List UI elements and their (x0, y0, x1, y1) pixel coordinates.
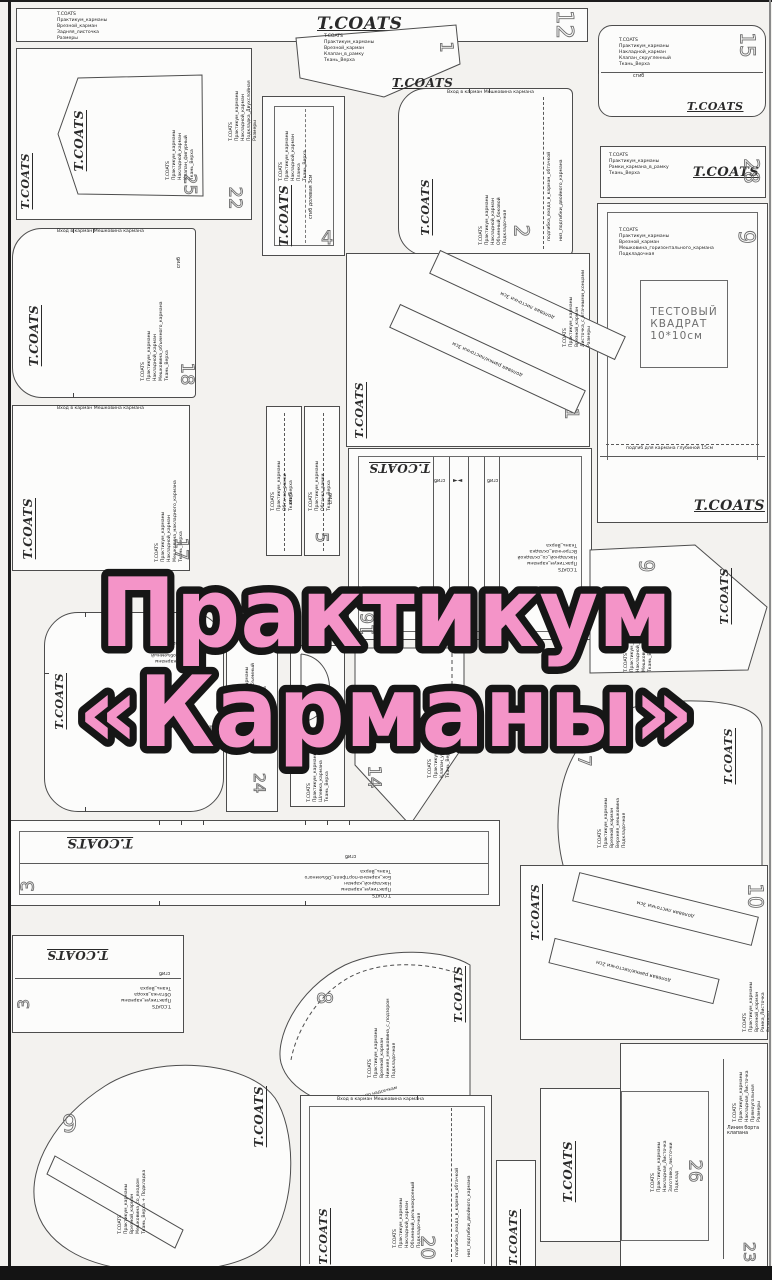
piece-info-block: T.COATS Практикум_карманы Накладной_карм… (279, 111, 309, 181)
pattern-piece-flap-15: T.COATS Практикум_карманы Накладной_карм… (598, 25, 766, 117)
grain-bar: долевая листочки 3см (572, 872, 759, 946)
pattern-piece-welt-1: долевая листочки 3см долевая рамки/листо… (346, 253, 590, 447)
grain-bar-label: долевая листочки 3см (499, 290, 555, 320)
notch-mark (93, 228, 94, 233)
piece-info-block: T.COATS Практикум_карманы Накладной_карм… (479, 179, 509, 245)
fold-line (600, 456, 765, 457)
pattern-piece-strip-28: T.COATS Практикум_карманы Рамки_кармана_… (600, 146, 766, 198)
piece-number: 18 (177, 363, 195, 386)
hem-note: низ_подгибки_двойного_кармана (559, 101, 565, 241)
pattern-piece-strip-5b: T.COATS Практикум_карманы Обтачка_рамки … (304, 406, 340, 556)
piece-info-block: T.COATS Практикум_карманы Врезной_карман… (118, 1148, 148, 1234)
piece-info-block: T.COATS Практикум_карманы Накладной_карм… (229, 61, 259, 141)
hem-note: низ_подгибки_двойного_кармана (467, 1112, 473, 1257)
brand-logo: T.COATS (369, 461, 430, 475)
pattern-piece-pocket-18: Вход в карман Мешковина кармана T.COATS … (12, 228, 196, 398)
piece-info-block: T.COATS Практикум_карманы Врезной_карман… (368, 1002, 398, 1078)
notch-mark (469, 88, 470, 93)
brand-logo: T.COATS (67, 835, 133, 850)
piece-info-block: T.COATS Практикум_карманы Накладной_карм… (166, 110, 196, 180)
brand-logo: T.COATS (317, 1208, 330, 1265)
notch-mark (598, 70, 599, 74)
pleat-arrow-icon: ►◄ (453, 477, 462, 484)
notch-mark (349, 820, 350, 825)
piece-number: 23 (741, 1242, 757, 1262)
pattern-piece-fold-3: T.COATS сгиб T.COATS Практикум_карманы О… (12, 935, 184, 1033)
grain-bar-label: долевая рамки/листочки 3см (451, 340, 523, 378)
notch-mark (85, 807, 86, 812)
test-square-label: ТЕСТОВЫЙ КВАДРАТ 10*10см (650, 306, 717, 342)
title-line-2: «Карманы» (78, 656, 694, 770)
hem-line (543, 97, 544, 249)
notch-mark (181, 820, 182, 825)
piece-number: 9 (734, 230, 756, 244)
pattern-sheet: T.COATS Практикум_карманы Врезной_карман… (0, 0, 772, 1280)
pattern-piece-strip-5a: T.COATS Практикум_карманы Обтачка_рамки … (266, 406, 302, 556)
hem-note: подгибка_входа_в_карман_обтачкой (455, 1112, 461, 1257)
pocket-entry-label: Вход в карман Мешковина кармана (57, 229, 144, 235)
piece-number: 4 (321, 229, 333, 248)
piece-number: 3 (16, 999, 32, 1009)
piece-number: 28 (742, 158, 762, 183)
brand-logo: T.COATS (694, 498, 765, 514)
piece-number: 22 (225, 187, 243, 210)
piece-info-block: T.COATS Практикум_карманы Накладной_карм… (261, 867, 391, 897)
piece-number: 25 (180, 174, 197, 196)
piece-number: 2 (511, 225, 531, 238)
brand-logo: T.COATS (19, 153, 32, 210)
pocket-entry-label: Вход в карман Мешковина кармана (447, 90, 567, 96)
pocket-depth-note: подгиб для кармана глубиной 15см (626, 446, 713, 452)
grain-bar: долевая рамки/листочки 2см (548, 938, 719, 1004)
pattern-piece-bag-9 (25, 1038, 300, 1268)
brand-logo: T.COATS (27, 305, 41, 366)
piece-number: 1 (562, 407, 581, 419)
brand-logo: T.COATS (72, 110, 86, 171)
sheet-edge-bottom (0, 1266, 772, 1280)
piece-info-block: T.COATS Практикум_карманы Обтачка_входа … (91, 984, 171, 1008)
test-square: ТЕСТОВЫЙ КВАДРАТ 10*10см (640, 280, 728, 368)
piece-number: 12 (552, 10, 575, 39)
pattern-piece-test-square-9: T.COATS Практикум_карманы Врезной_карман… (597, 203, 768, 523)
pattern-piece-pocket-20: Вход в карман Мешковина кармана подгибка… (300, 1095, 492, 1268)
pocket-depth-line (606, 444, 759, 445)
piece-number: 3 (20, 880, 38, 891)
piece-info-block: T.COATS Практикум_карманы Накладной_карм… (619, 38, 709, 68)
pattern-piece-welt-10: T.COATS 10 долевая листочки 3см долевая … (520, 865, 768, 1040)
pattern-piece-rect-23: T.COATS Практикум_карманы Накладная_Лист… (620, 1043, 768, 1268)
piece-info-block: T.COATS Практикум_карманы Накладная_Лист… (733, 1052, 763, 1122)
brand-logo: T.COATS (252, 1086, 266, 1147)
fold-label: сгиб (329, 493, 334, 504)
brand-logo: T.COATS (277, 185, 291, 246)
flap-edge-line (723, 1059, 724, 1259)
fold-label: сгиб (434, 477, 445, 482)
piece-info-block: T.COATS Практикум_карманы Врезной_карман… (743, 966, 772, 1032)
notch-mark (73, 228, 74, 233)
fold-label: сгиб (289, 493, 294, 504)
sheet-edge-right (769, 0, 771, 1266)
notch-mark (489, 88, 490, 93)
fold-label: сгиб (159, 970, 170, 975)
pattern-piece-strip-4: T.COATS Практикум_карманы Накладной_карм… (262, 96, 345, 256)
pattern-piece-plain: T.COATS (540, 1088, 632, 1242)
pocket-entry-label: Вход в карман Мешковина кармана (337, 1097, 424, 1103)
piece-number: 1 (437, 41, 455, 52)
grain-bar-label: долевая листочки 3см (636, 899, 695, 919)
brand-logo: T.COATS (419, 179, 432, 236)
notch-mark (327, 820, 328, 825)
pattern-piece-pocket-2: Вход в карман Мешковина кармана подгибка… (398, 88, 573, 256)
hem-note: подгибка_входа_в_карман_обтачкой (547, 101, 553, 241)
piece-info-block: T.COATS Практикум_карманы Врезной_карман… (57, 12, 147, 42)
fold-label: сгиб (345, 853, 356, 858)
fold-line (601, 72, 763, 73)
piece-number: 15 (738, 32, 758, 57)
fold-label: сгиб (633, 74, 644, 79)
notch-mark (159, 820, 160, 825)
fold-label: сгиб (177, 257, 182, 268)
notch-mark (73, 393, 74, 398)
piece-info-block: T.COATS Практикум_карманы Накладная_Лист… (651, 1116, 681, 1192)
flap-edge-label: Линия борта клапана (727, 1126, 767, 1236)
pattern-piece-strip-3: T.COATS сгиб T.COATS Практикум_карманы Н… (8, 820, 500, 906)
sheet-edge-left (8, 0, 11, 1280)
fold-label: сгиб (487, 477, 498, 482)
piece-info-block: T.COATS Практикум_карманы Врезной_карман… (598, 782, 628, 848)
pocket-entry-label: Вход в карман Мешковина кармана (57, 406, 144, 412)
piece-number: 26 (685, 1160, 703, 1183)
brand-logo: T.COATS (529, 884, 542, 941)
piece-info-block: T.COATS Практикум_карманы Врезной_карман… (324, 34, 394, 64)
grain-note: сгиб долевая 3см (309, 139, 314, 219)
notch-mark (159, 901, 160, 906)
piece-number: 24 (251, 773, 267, 793)
piece-info-block: T.COATS Практикум_карманы Накладной_карм… (141, 301, 171, 381)
notch-mark (765, 70, 766, 74)
piece-info-block: T.COATS Практикум_карманы Рамки_кармана_… (609, 153, 694, 177)
piece-number: 20 (418, 1235, 437, 1259)
sheet-edge-top (0, 0, 772, 2)
notch-mark (305, 901, 306, 906)
fold-line (15, 978, 181, 979)
brand-logo: T.COATS (687, 100, 744, 113)
brand-logo: T.COATS (561, 1141, 575, 1202)
brand-logo: T.COATS (507, 1209, 520, 1266)
notch-mark (203, 820, 204, 825)
notch-mark (305, 820, 306, 825)
brand-logo: T.COATS (47, 948, 108, 962)
piece-info-block: T.COATS Практикум_карманы Врезной_карман… (563, 272, 593, 347)
brand-logo: T.COATS (452, 966, 465, 1023)
piece-number: 8 (314, 992, 334, 1005)
brand-logo: T.COATS (353, 382, 366, 439)
piece-number: 9 (62, 1112, 77, 1136)
title-line-1: Практикум (100, 559, 672, 669)
notch-mark (417, 1095, 418, 1100)
title-banner: Практикум «Карманы» (0, 540, 772, 770)
pattern-piece-side-strip: T.COATS (496, 1160, 536, 1266)
fold-line (20, 863, 488, 864)
grain-bar-label: долевая рамки/листочки 2см (596, 959, 672, 983)
piece-number: 10 (746, 883, 766, 908)
hem-line (451, 1108, 452, 1262)
